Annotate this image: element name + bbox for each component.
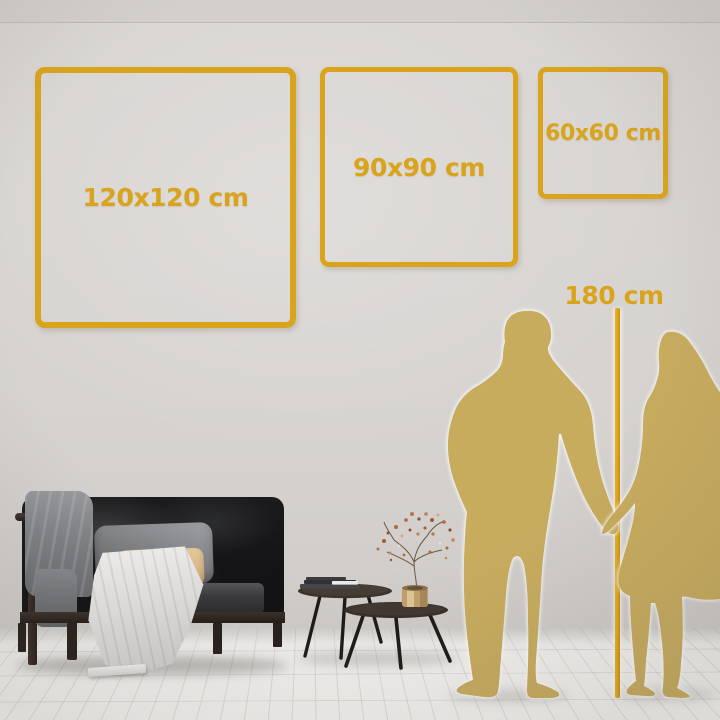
brass-vase [402,585,428,607]
sofa-leg [213,623,222,654]
size-label-90: 90x90 cm [353,153,485,182]
size-frame-60: 60x60 cm [538,67,668,199]
dried-branch [384,521,445,590]
woman-silhouette [602,332,720,698]
coffee-table-left [298,584,392,658]
sofa [15,485,293,677]
coffee-table-set [280,505,470,680]
size-guide-scene: 120x120 cm 90x90 cm 60x60 cm 180 cm [0,0,720,720]
couple-silhouette [440,300,720,720]
sofa-leg [18,623,26,652]
coffee-table-right [344,602,450,668]
man-silhouette [448,311,618,698]
sofa-leg [67,623,76,659]
stacked-books [300,577,360,589]
ceiling-strip [0,0,720,23]
size-frame-120: 120x120 cm [35,67,296,328]
size-label-120: 120x120 cm [82,183,248,212]
size-frame-90: 90x90 cm [320,67,518,267]
size-label-60: 60x60 cm [545,121,661,146]
